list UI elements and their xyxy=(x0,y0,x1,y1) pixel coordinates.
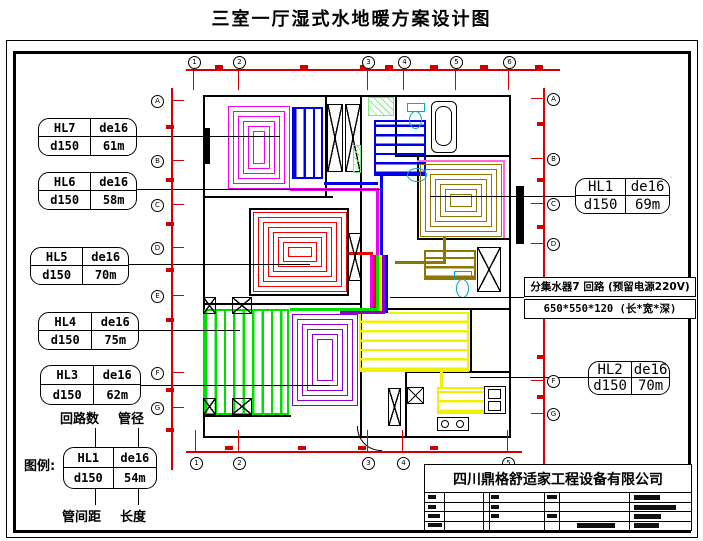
loop-pipe: de16 xyxy=(91,119,136,137)
loop-labels-layer: HL7de16d15061mHL6de16d15058mHL5de16d1507… xyxy=(0,0,703,541)
title-block: 四川鼎格舒适家工程设备有限公司 xyxy=(424,464,692,531)
loop-label-HL4: HL4de16d15075m xyxy=(38,312,139,350)
loop-id: HL4 xyxy=(39,313,92,331)
loop-id: HL5 xyxy=(31,248,83,266)
loop-pipe: de16 xyxy=(91,173,136,191)
loop-spacing: d150 xyxy=(64,468,114,488)
redacted-text-bar xyxy=(428,514,440,518)
loop-id: HL3 xyxy=(41,366,94,385)
loop-length: 54m xyxy=(114,468,156,488)
legend-length-label: 长度 xyxy=(120,506,146,525)
loop-spacing: d150 xyxy=(576,196,626,213)
redacted-text-bar xyxy=(634,495,660,500)
loop-spacing: d150 xyxy=(31,266,83,284)
loop-id: HL1 xyxy=(576,179,626,196)
redacted-text-bar xyxy=(634,514,661,519)
company-name: 四川鼎格舒适家工程设备有限公司 xyxy=(425,465,691,493)
legend-pipe-diameter-label: 管径 xyxy=(118,408,144,427)
loop-label-HL6: HL6de16d15058m xyxy=(38,172,137,210)
loop-pipe: de16 xyxy=(632,362,669,378)
legend-pipe-spacing-label: 管间距 xyxy=(62,506,101,525)
loop-label-HL5: HL5de16d15070m xyxy=(30,247,129,285)
loop-length: 62m xyxy=(94,385,140,404)
loop-spacing: d150 xyxy=(39,137,91,155)
loop-label-HL2: HL2de16d15070m xyxy=(588,361,670,395)
redacted-text-bar xyxy=(577,523,615,528)
loop-label-HL7: HL7de16d15061m xyxy=(38,118,137,156)
legend-prefix: 图例: xyxy=(24,455,55,474)
title-block-grid-line xyxy=(425,521,691,522)
manifold-spec-line1: 分集水器7 回路 (预留电源220V) xyxy=(524,277,696,297)
loop-id: HL6 xyxy=(39,173,91,191)
loop-pipe: de16 xyxy=(114,448,156,468)
loop-label-HL1: HL1de16d15069m xyxy=(575,178,670,214)
redacted-text-bar xyxy=(491,505,499,509)
loop-label-HL3: HL3de16d15062m xyxy=(40,365,141,405)
loop-pipe: de16 xyxy=(626,179,669,196)
loop-id: HL2 xyxy=(589,362,632,378)
redacted-text-bar xyxy=(428,523,442,527)
redacted-text-bar xyxy=(547,514,557,518)
title-block-grid-line xyxy=(425,502,691,503)
legend-loop-count-label: 回路数 xyxy=(60,408,99,427)
loop-spacing: d150 xyxy=(589,378,632,394)
loop-pipe: de16 xyxy=(94,366,140,385)
redacted-text-bar xyxy=(547,495,557,499)
loop-length: 70m xyxy=(83,266,128,284)
legend-sample-label-HL1: HL1de16d15054m xyxy=(63,447,157,489)
loop-spacing: d150 xyxy=(41,385,94,404)
loop-length: 70m xyxy=(632,378,669,394)
redacted-text-bar xyxy=(428,505,436,509)
redacted-text-bar xyxy=(491,514,499,518)
loop-id: HL7 xyxy=(39,119,91,137)
loop-length: 69m xyxy=(626,196,669,213)
loop-id: HL1 xyxy=(64,448,114,468)
redacted-text-bar xyxy=(634,505,676,510)
manifold-spec-box: 分集水器7 回路 (预留电源220V) 650*550*120 (长*宽*深) xyxy=(524,277,696,319)
loop-spacing: d150 xyxy=(39,191,91,209)
loop-spacing: d150 xyxy=(39,331,92,349)
redacted-text-bar xyxy=(491,495,499,499)
redacted-text-bar xyxy=(428,495,436,499)
loop-length: 75m xyxy=(92,331,138,349)
loop-pipe: de16 xyxy=(83,248,128,266)
title-block-grid-line xyxy=(425,511,691,512)
redacted-text-bar xyxy=(634,523,659,528)
loop-pipe: de16 xyxy=(92,313,138,331)
manifold-spec-line2: 650*550*120 (长*宽*深) xyxy=(524,299,696,319)
loop-length: 58m xyxy=(91,191,136,209)
loop-length: 61m xyxy=(91,137,136,155)
drawing-canvas: 三室一厅湿式水地暖方案设计图 12345612345ABCDEFGABCDFG … xyxy=(0,0,703,541)
